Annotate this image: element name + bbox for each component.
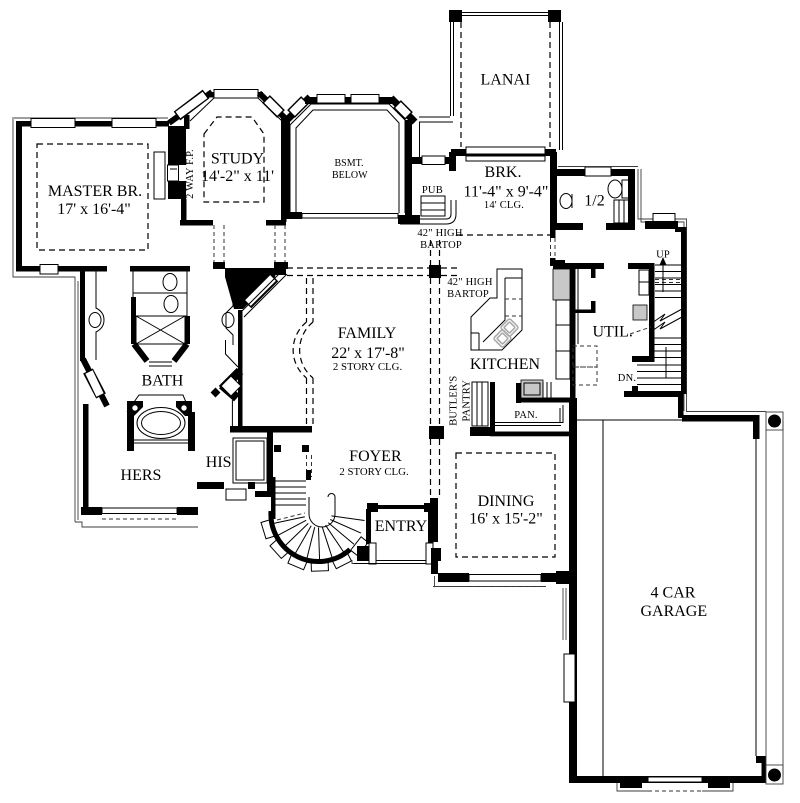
svg-text:UTIL.: UTIL. [592, 324, 632, 341]
svg-text:BARTOP: BARTOP [420, 240, 462, 251]
svg-text:PAN.: PAN. [514, 410, 537, 421]
svg-text:14'-2" x 11': 14'-2" x 11' [201, 168, 274, 185]
svg-text:BUTLER'S: BUTLER'S [448, 376, 459, 426]
svg-text:4 CAR: 4 CAR [651, 585, 696, 602]
svg-text:LANAI: LANAI [481, 72, 531, 89]
svg-text:14' CLG.: 14' CLG. [484, 200, 524, 211]
svg-text:2 WAY F.P.: 2 WAY F.P. [185, 149, 196, 199]
svg-text:MASTER BR.: MASTER BR. [48, 183, 142, 200]
svg-text:2 STORY CLG.: 2 STORY CLG. [333, 361, 402, 373]
svg-text:BRK.: BRK. [485, 164, 522, 181]
svg-text:KITCHEN: KITCHEN [470, 356, 541, 373]
svg-text:PANTRY: PANTRY [461, 380, 472, 422]
svg-text:17' x 16'-4": 17' x 16'-4" [57, 201, 131, 218]
svg-text:HIS: HIS [206, 454, 232, 471]
svg-text:2 STORY CLG.: 2 STORY CLG. [339, 466, 408, 478]
svg-text:BARTOP: BARTOP [447, 289, 489, 300]
svg-text:22' x 17'-8": 22' x 17'-8" [331, 345, 405, 362]
svg-text:DN.: DN. [618, 373, 636, 384]
svg-text:42" HIGH: 42" HIGH [417, 228, 462, 239]
svg-text:42" HIGH: 42" HIGH [447, 277, 492, 288]
svg-text:BELOW: BELOW [332, 170, 368, 181]
svg-text:FAMILY: FAMILY [338, 325, 397, 342]
svg-text:16' x 15'-2": 16' x 15'-2" [469, 511, 543, 528]
svg-text:1/2: 1/2 [584, 193, 604, 210]
svg-text:UP: UP [656, 250, 670, 261]
svg-text:HERS: HERS [121, 467, 162, 484]
svg-text:ENTRY: ENTRY [375, 518, 428, 535]
svg-text:PUB: PUB [422, 185, 443, 196]
svg-text:BSMT.: BSMT. [335, 158, 364, 169]
svg-text:STUDY: STUDY [211, 151, 265, 168]
svg-text:FOYER: FOYER [349, 448, 402, 465]
svg-text:11'-4" x 9'-4": 11'-4" x 9'-4" [464, 184, 549, 201]
svg-text:GARAGE: GARAGE [640, 603, 707, 620]
svg-text:DINING: DINING [478, 493, 535, 510]
svg-text:BATH: BATH [142, 373, 184, 390]
